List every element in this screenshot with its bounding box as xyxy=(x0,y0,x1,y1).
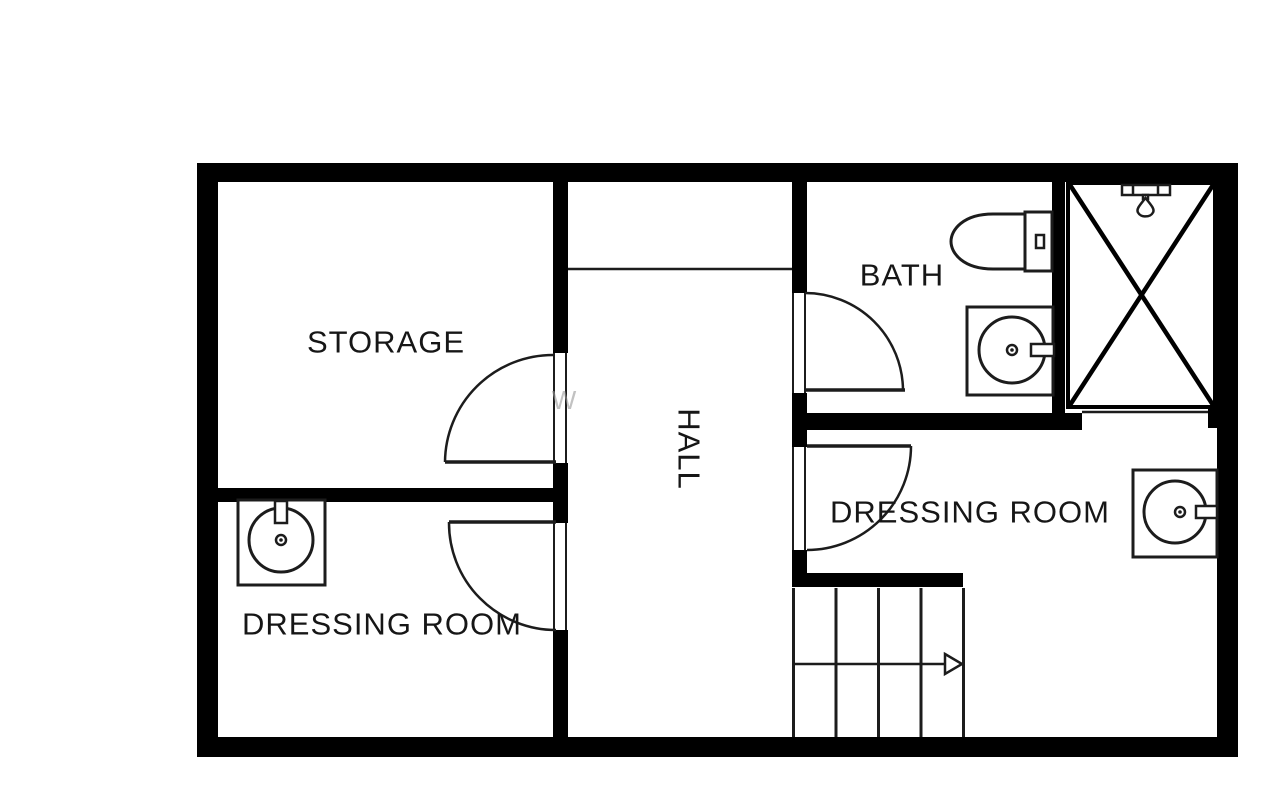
plan-linework xyxy=(0,0,1280,800)
watermark-text: W xyxy=(552,387,577,413)
dressing-right-sink-tap xyxy=(1196,506,1217,518)
dressing-right-sink-icon xyxy=(1133,470,1217,557)
floor-plan: STORAGE BATH HALL DRESSING ROOM DRESSING… xyxy=(0,0,1280,800)
dressing-room-right-label: DRESSING ROOM xyxy=(830,497,1110,528)
toilet-icon xyxy=(951,212,1052,271)
dressing-room-left-label: DRESSING ROOM xyxy=(242,609,522,640)
bath-door-arc xyxy=(805,293,903,390)
bath-sink-tap xyxy=(1031,344,1054,356)
storage-door-arc xyxy=(445,355,553,462)
dressing-left-sink-icon xyxy=(238,500,325,585)
stairs-direction-arrowhead xyxy=(945,654,962,674)
stairs-icon xyxy=(794,588,964,737)
toilet-bowl xyxy=(951,214,1026,269)
bath-label: BATH xyxy=(860,260,944,291)
bath-door xyxy=(805,293,905,390)
toilet-flush-button xyxy=(1036,235,1044,248)
stairs-treads xyxy=(794,588,964,737)
dressing-left-sink-tap xyxy=(275,501,287,523)
hall-label: HALL xyxy=(674,408,705,490)
storage-label: STORAGE xyxy=(307,327,465,358)
storage-door xyxy=(445,355,556,462)
shower-icon xyxy=(1068,183,1215,412)
bath-sink-icon xyxy=(967,307,1054,395)
